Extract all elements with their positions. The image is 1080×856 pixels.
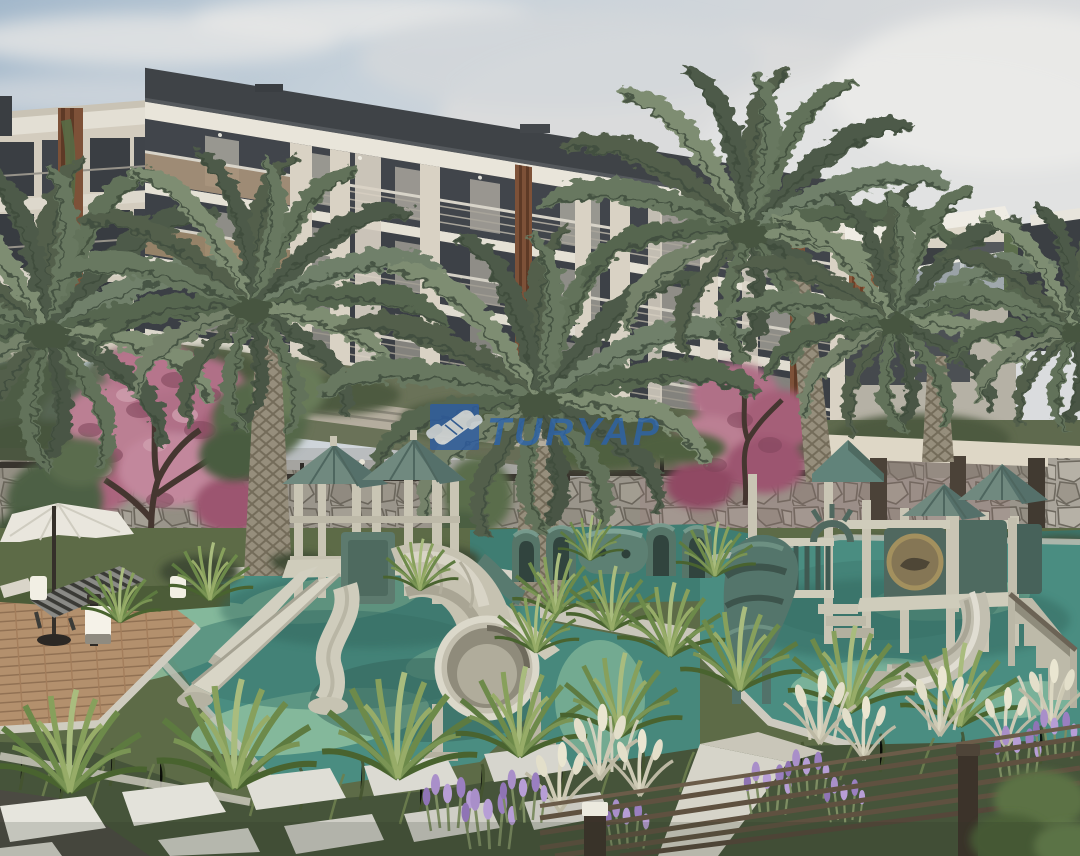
svg-text:TURYAP: TURYAP (487, 411, 662, 454)
